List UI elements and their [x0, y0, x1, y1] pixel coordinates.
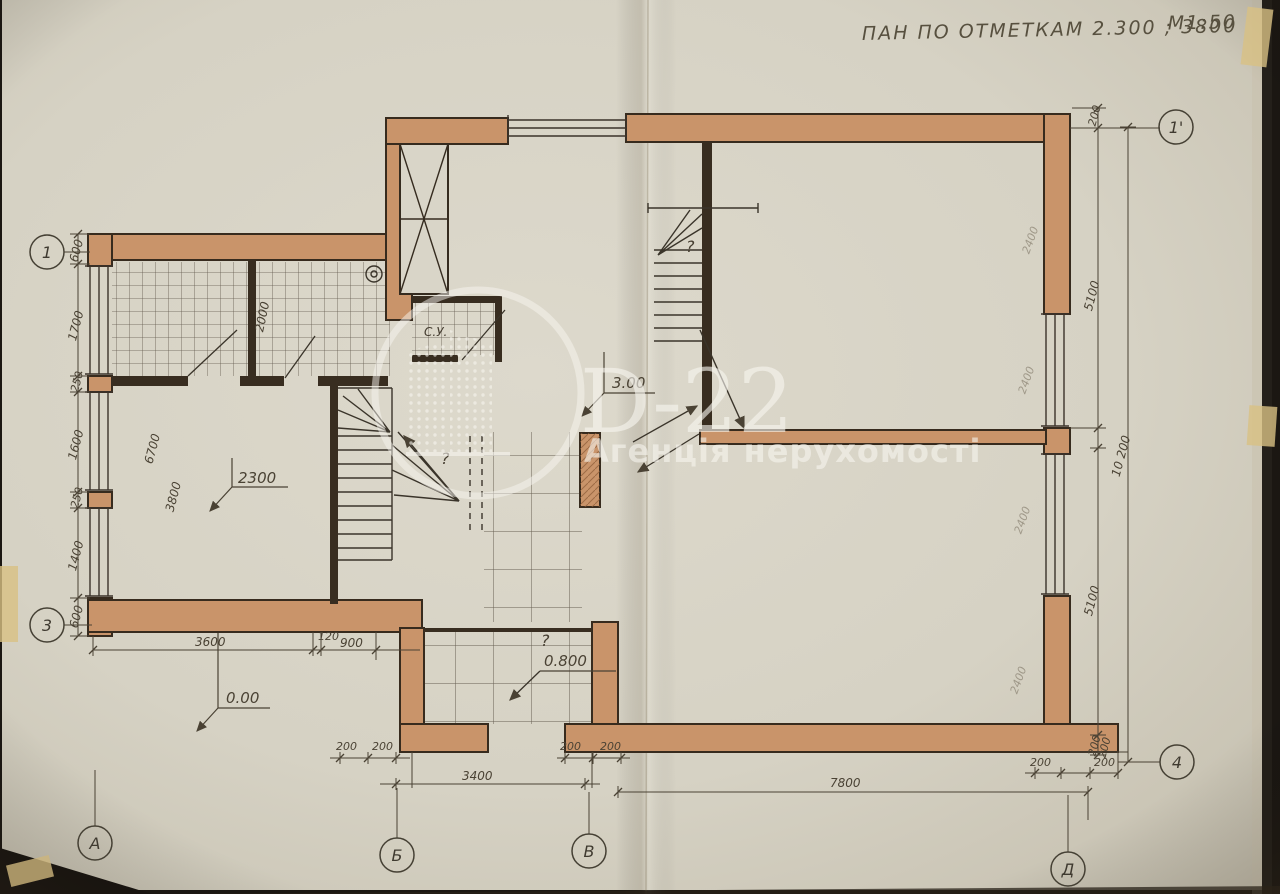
wall-left-a — [88, 234, 112, 266]
dim-900: 900 — [340, 636, 363, 650]
tape-left — [0, 566, 18, 642]
axis-label-4: 4 — [1172, 753, 1182, 772]
question-mark-3: ? — [541, 631, 550, 650]
hall-floor — [484, 432, 582, 622]
dim-120: 120 — [318, 630, 339, 643]
title-scale: М1:50 — [1168, 11, 1238, 34]
dim-bc-200c: 200 — [560, 740, 581, 753]
axis-label-a: А — [89, 834, 101, 853]
axis-label-v: В — [584, 842, 595, 861]
axis-label-1prime: 1' — [1169, 118, 1184, 137]
axis-label-3: 3 — [42, 616, 52, 635]
wall-top-right-block — [626, 114, 1070, 142]
dim-bc-200d: 200 — [600, 740, 621, 753]
wall-under-tiled-2 — [240, 376, 284, 386]
partition-hall — [330, 378, 338, 604]
watermark-subtitle: Агенція нерухомості — [584, 432, 982, 470]
dim-bc-200a: 200 — [336, 740, 357, 753]
elevation-porch: 0.800 — [544, 652, 587, 670]
dim-3600: 3600 — [195, 635, 226, 649]
wall-bottom-porch — [400, 724, 488, 752]
wall-under-tiled-1 — [112, 376, 188, 386]
floor-plan-photo: 600 1700 250 1600 250 1400 600 2000 6700… — [0, 0, 1280, 894]
axis-label-1: 1 — [42, 243, 52, 262]
dim-7800: 7800 — [830, 776, 861, 790]
tape-right — [1247, 405, 1278, 447]
wall-top-left-block — [88, 234, 396, 260]
wall-right-a — [1044, 114, 1070, 314]
dim-bc-200b: 200 — [372, 740, 393, 753]
question-mark-2: ? — [686, 237, 695, 256]
room-label-bathroom: С.У. — [424, 325, 447, 339]
wall-bottom-left-block — [88, 600, 422, 632]
wall-right-pier — [1044, 428, 1070, 454]
blueprint-svg: 600 1700 250 1600 250 1400 600 2000 6700… — [0, 0, 1280, 894]
wall-left-pier2 — [88, 492, 112, 508]
wall-mid-top — [386, 118, 508, 144]
porch-floor — [424, 632, 592, 724]
dim-3400: 3400 — [462, 769, 493, 783]
porch-step-edge — [424, 628, 592, 632]
elevation-ground: 0.00 — [226, 689, 259, 707]
tiled-room-left — [112, 262, 248, 376]
wall-left-pier1 — [88, 376, 112, 392]
dim-br-200a: 200 — [1030, 756, 1051, 769]
chimney-shaft — [400, 144, 448, 294]
wall-bottom-right — [565, 724, 1118, 752]
axis-label-b: Б — [392, 846, 403, 865]
tiled-room-right — [256, 262, 390, 376]
axis-label-d: Д — [1061, 860, 1075, 879]
elevation-room: 2300 — [238, 469, 276, 487]
bathroom-wall-right — [495, 296, 502, 362]
